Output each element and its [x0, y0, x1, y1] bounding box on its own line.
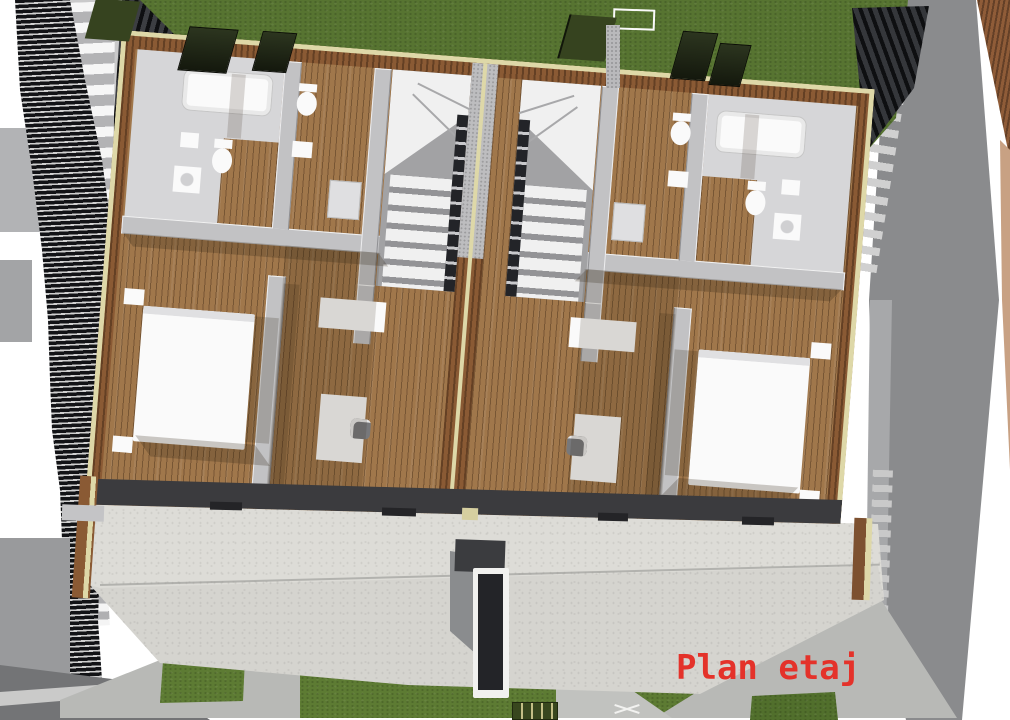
- washing-machine: [773, 213, 802, 241]
- eave-plate-block: [462, 508, 478, 521]
- nightstand: [112, 436, 133, 454]
- building-upper-floor: [83, 30, 875, 588]
- stair-flight: [382, 175, 453, 292]
- eave-clip: [382, 508, 416, 517]
- neighbor-block: [0, 260, 32, 342]
- plan-title: Plan etaj: [676, 648, 860, 688]
- bed: [688, 349, 810, 493]
- wall-extension-right: [852, 518, 873, 601]
- dirt-sliver: [998, 140, 1010, 470]
- skylight-slot-void: [478, 574, 503, 690]
- picnic-table-marker: [512, 702, 558, 720]
- shower: [327, 180, 362, 220]
- bathtub: [714, 110, 807, 159]
- nightstand: [124, 288, 145, 306]
- sink: [180, 132, 199, 148]
- washing-machine: [172, 166, 201, 194]
- shower: [611, 202, 646, 242]
- x-marker: [612, 702, 642, 717]
- hall-shade: [565, 269, 679, 524]
- eave-clip: [598, 513, 628, 522]
- hall-shade: [266, 245, 380, 500]
- nightstand: [810, 342, 831, 360]
- bathtub: [181, 68, 274, 117]
- sink: [292, 141, 313, 159]
- concrete-pillar: [606, 25, 620, 88]
- eave-clip: [742, 517, 774, 526]
- bed: [133, 306, 255, 450]
- unit-right: [462, 65, 859, 552]
- sink: [781, 179, 800, 195]
- toilet: [296, 91, 318, 116]
- stair-flight: [516, 185, 587, 302]
- sink: [667, 170, 688, 188]
- floor-plan-3d-render: Plan etaj: [0, 0, 1010, 720]
- eave-clip: [210, 502, 242, 511]
- eave-step-piece: [62, 504, 105, 521]
- unit-left: [100, 36, 472, 521]
